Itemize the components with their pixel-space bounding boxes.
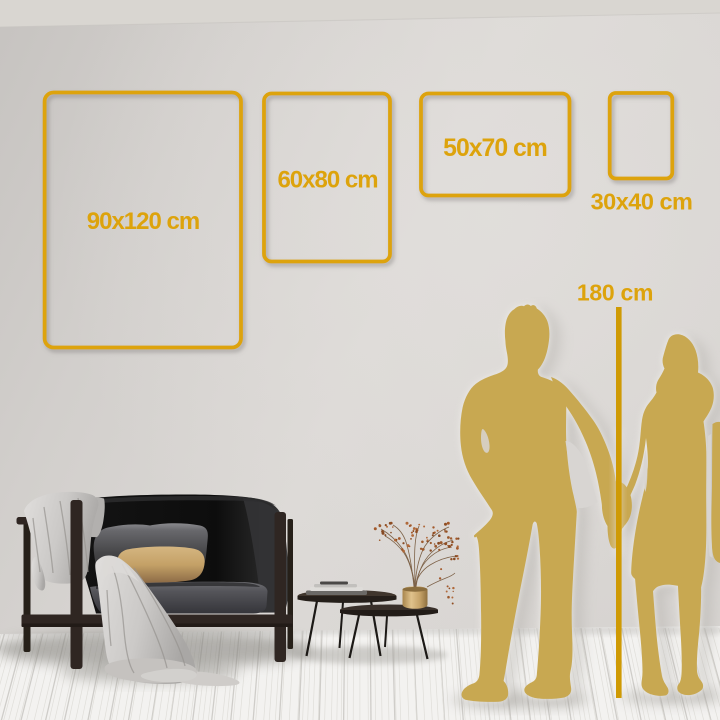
svg-text:30x40 cm: 30x40 cm xyxy=(591,189,693,215)
svg-text:90x120 cm: 90x120 cm xyxy=(87,208,199,235)
svg-text:180 cm: 180 cm xyxy=(577,280,653,306)
svg-text:60x80 cm: 60x80 cm xyxy=(277,167,377,194)
svg-text:50x70 cm: 50x70 cm xyxy=(443,135,547,162)
